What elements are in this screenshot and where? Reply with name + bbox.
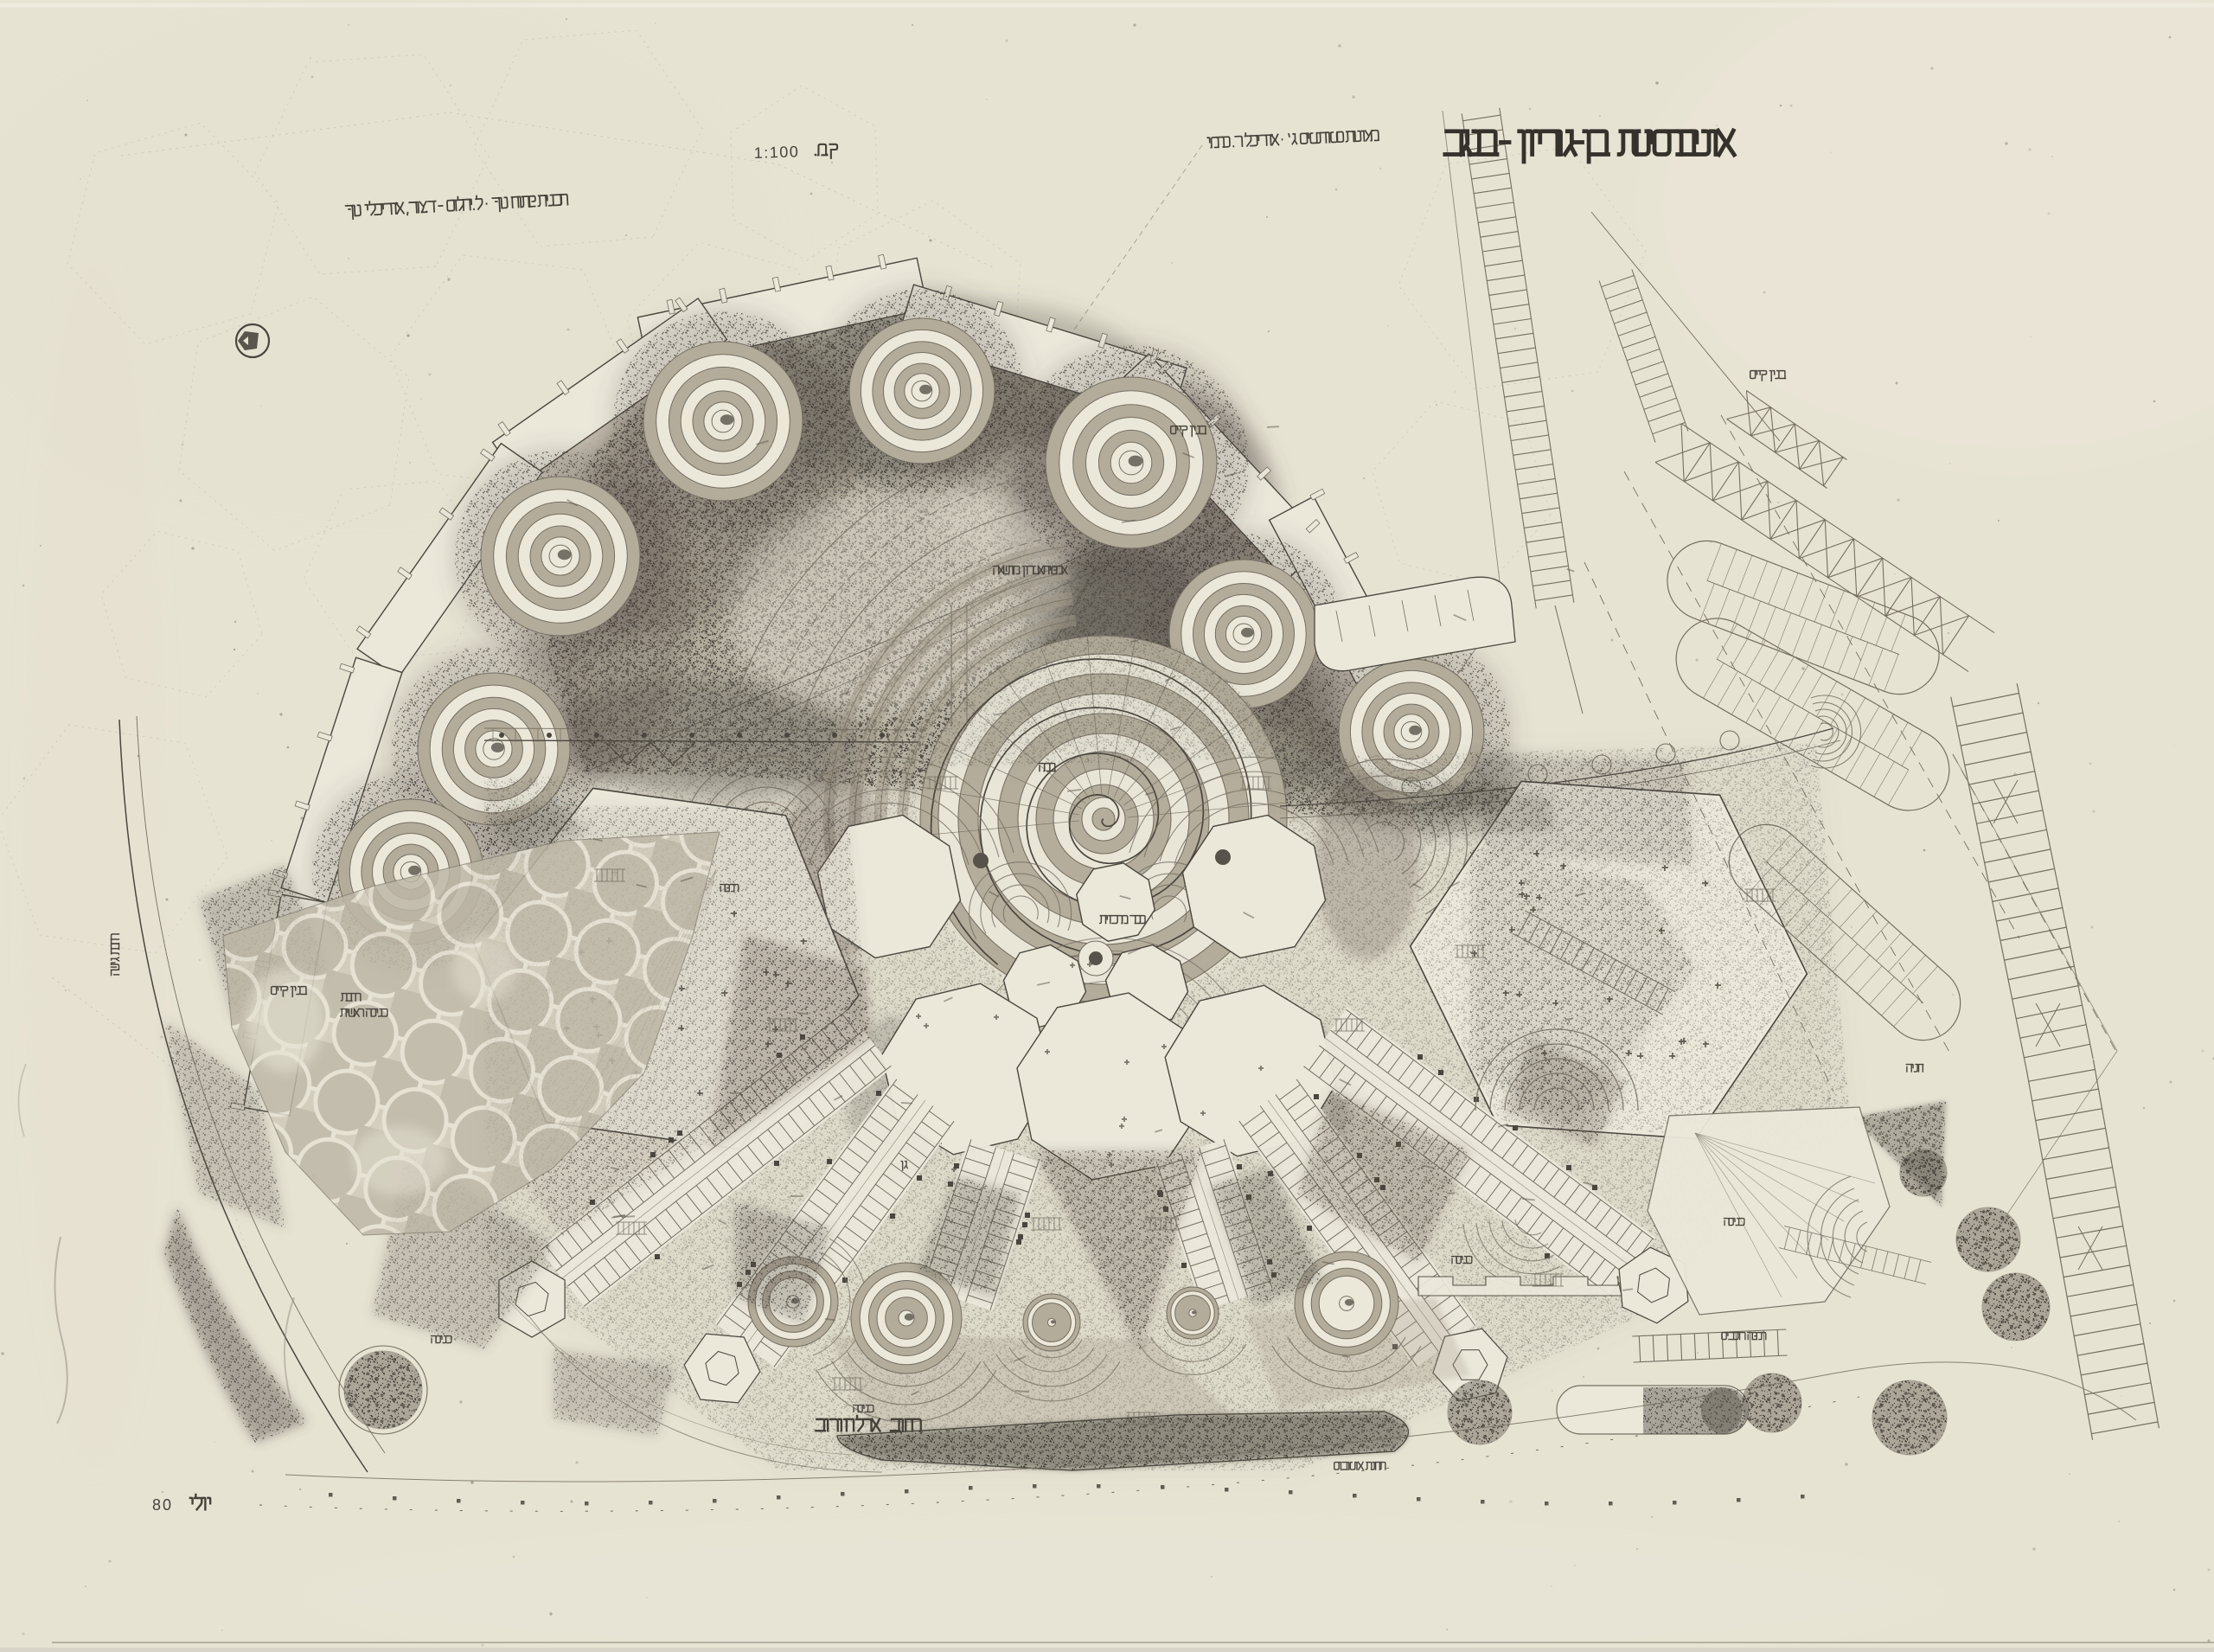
svg-text:80: 80 — [152, 1496, 173, 1514]
svg-text:1:100: 1:100 — [753, 143, 799, 162]
